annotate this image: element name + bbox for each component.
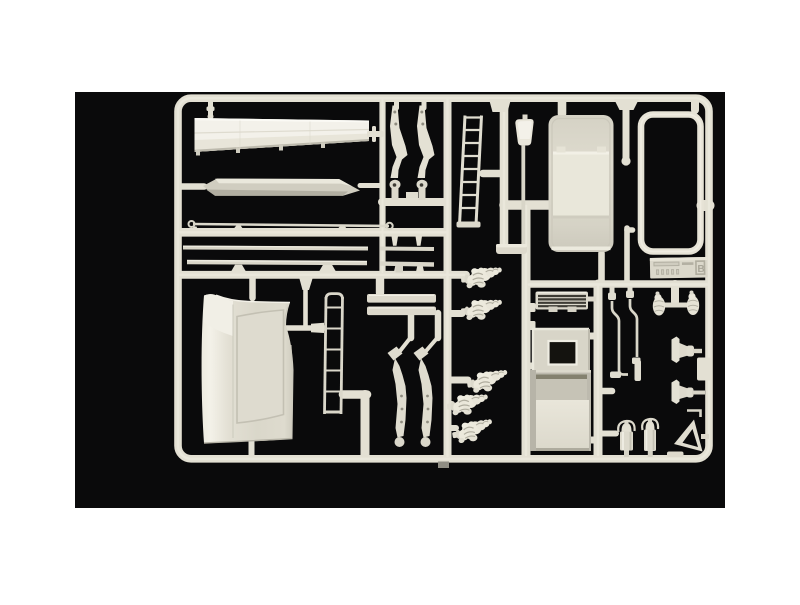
- svg-text:B: B: [697, 264, 704, 275]
